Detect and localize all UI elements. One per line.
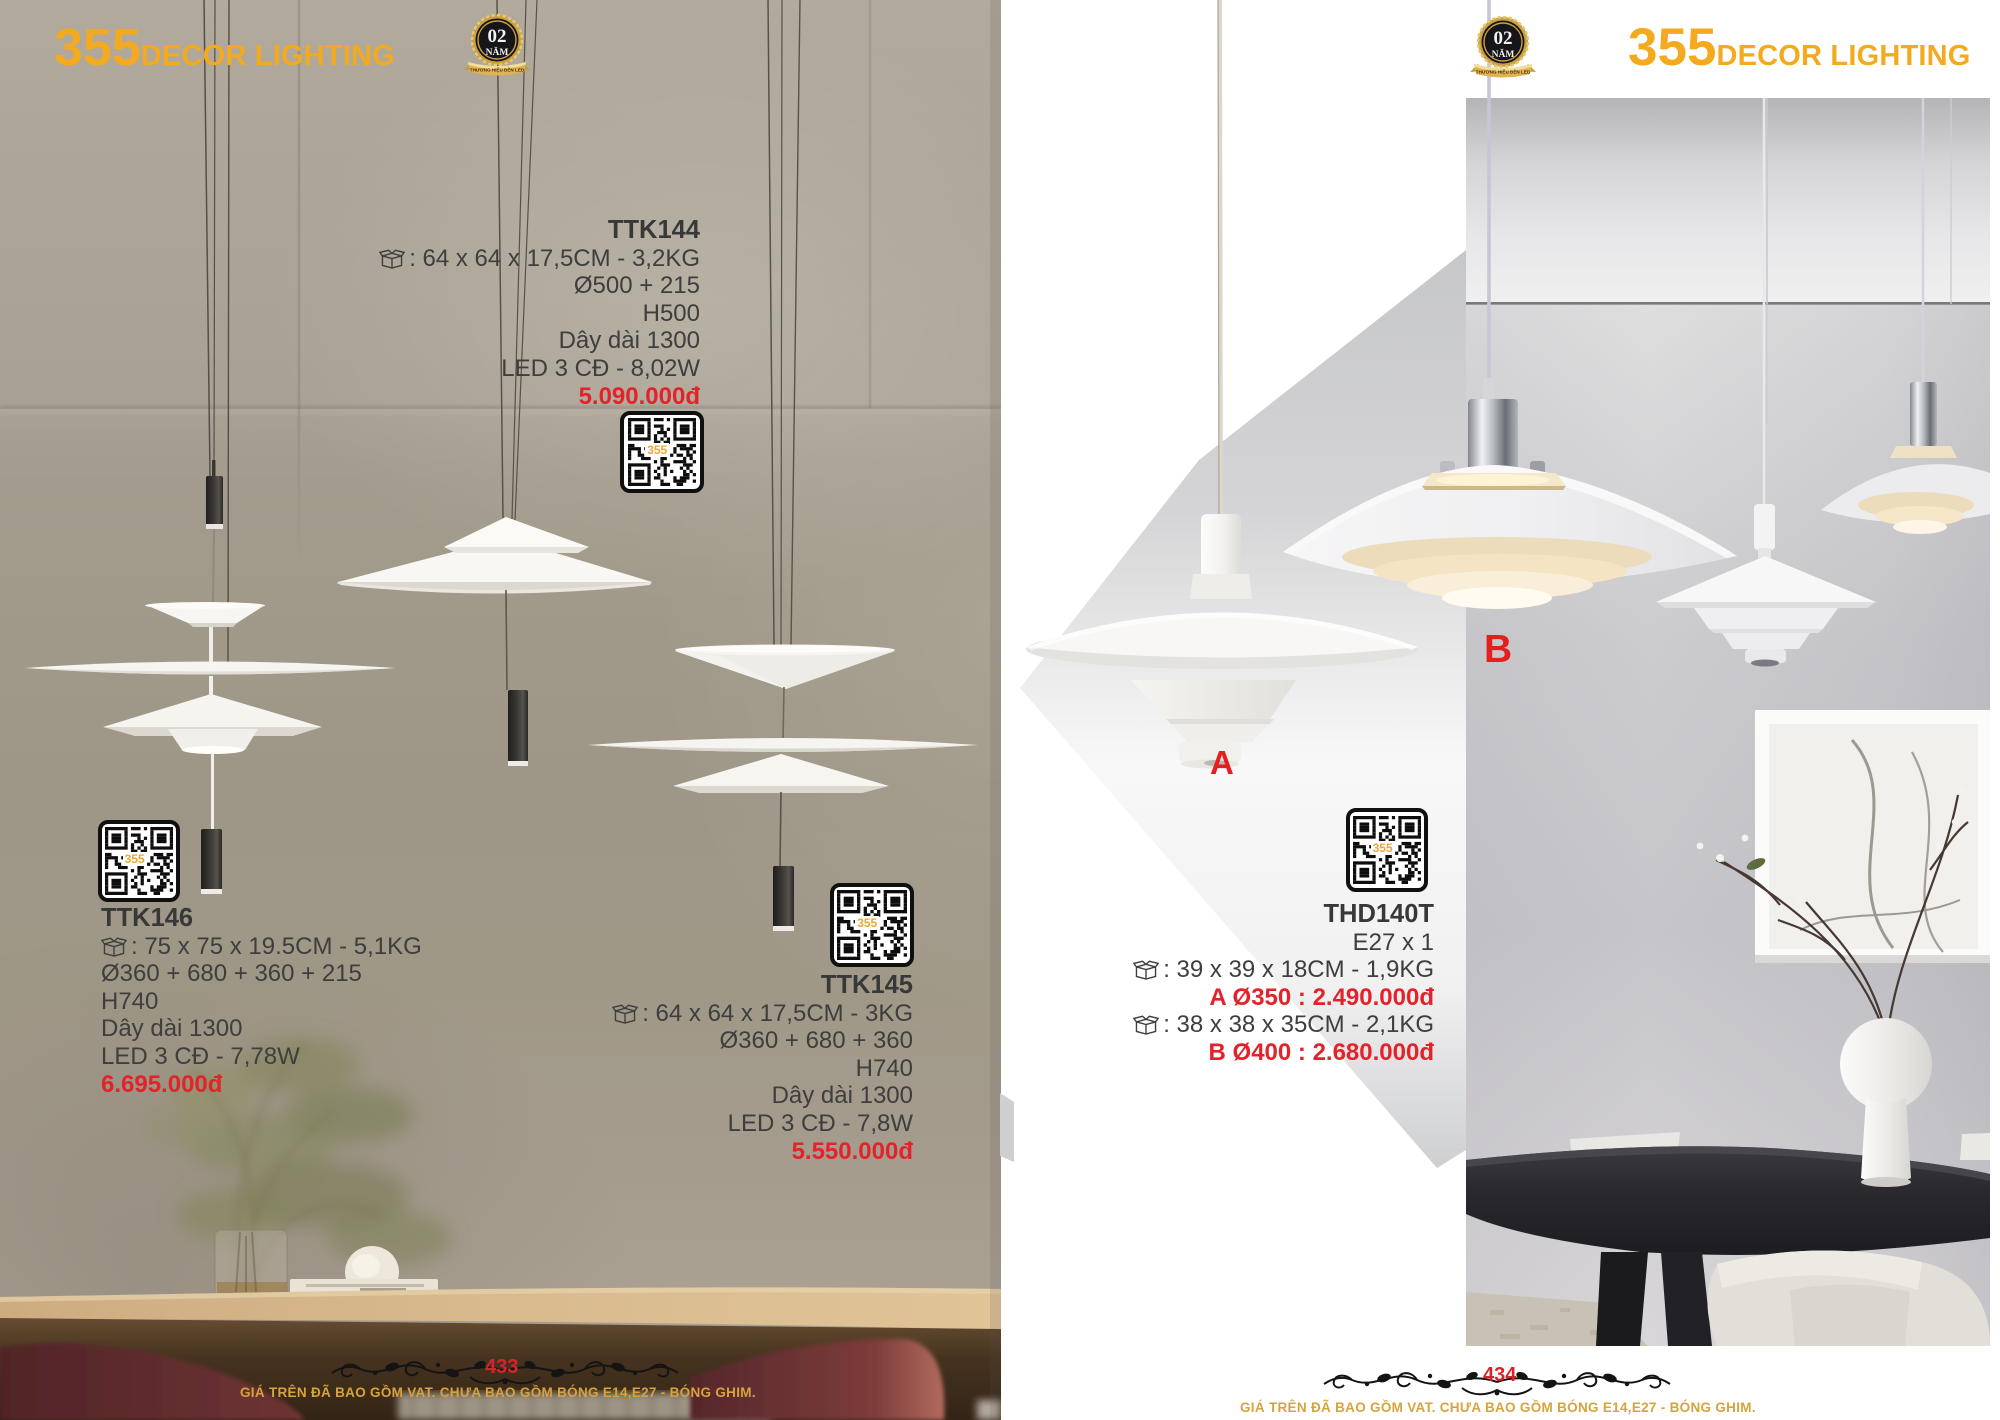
svg-text:NĂM: NĂM: [486, 46, 509, 58]
svg-text:THƯƠNG HIỆU ĐÈN LED: THƯƠNG HIỆU ĐÈN LED: [1476, 68, 1531, 75]
svg-text:NĂM: NĂM: [1492, 48, 1515, 60]
svg-text:THƯƠNG HIỆU ĐÈN LED: THƯƠNG HIỆU ĐÈN LED: [470, 66, 525, 73]
svg-text:02: 02: [488, 26, 507, 47]
svg-text:02: 02: [1494, 28, 1513, 49]
